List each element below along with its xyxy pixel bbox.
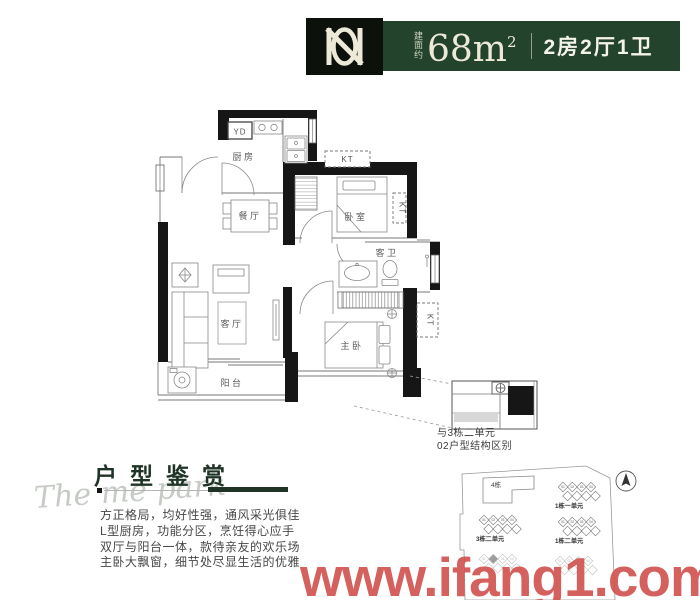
svg-text:03: 03 xyxy=(580,520,584,524)
svg-text:01: 01 xyxy=(561,520,565,524)
building-cluster: 010203043栋二单元 xyxy=(476,515,521,543)
svg-text:01: 01 xyxy=(561,485,565,489)
layout-summary: 2房2厅1卫 xyxy=(544,31,654,61)
watermark: www.ifang1.com xyxy=(300,545,700,600)
area-number: 68m xyxy=(427,29,507,70)
wardrobe xyxy=(295,177,317,210)
living-label: 客厅 xyxy=(220,318,243,329)
title-underline-thick xyxy=(208,487,288,492)
svg-text:04: 04 xyxy=(589,520,593,524)
balcony xyxy=(168,367,196,393)
svg-text:02: 02 xyxy=(571,485,575,489)
svg-text:02: 02 xyxy=(571,520,575,524)
building-4-label: 4栋 xyxy=(491,480,502,489)
svg-text:1栋一单元: 1栋一单元 xyxy=(555,502,584,510)
floorplan: YD 厨房 餐厅 卧室 KT KT KT xyxy=(140,95,560,465)
description-line: L型厨房，功能分区，烹饪得心应手 xyxy=(100,524,300,540)
area-value: 68m2 xyxy=(427,24,517,68)
page: 建面约 68m2 2房2厅1卫 xyxy=(0,0,700,600)
balcony-label: 阳台 xyxy=(220,377,243,388)
area-superscript: 2 xyxy=(507,33,517,51)
inset-caption-line1: 与3栋二单元 xyxy=(437,428,512,441)
svg-text:04: 04 xyxy=(510,518,514,522)
title-dot xyxy=(97,488,102,493)
building-cluster: 010203041栋一单元 xyxy=(555,482,600,510)
inset-caption-line2: 02户型结构区别 xyxy=(437,441,512,454)
building-4-outline xyxy=(483,476,534,503)
kitchen-label: 厨房 xyxy=(232,151,255,162)
svg-text:03: 03 xyxy=(501,518,505,522)
bay-window-strip xyxy=(338,292,403,308)
kt-tag-bedroom: KT xyxy=(398,202,407,214)
description-line: 主卧大飘窗，细节处尽显生活的优雅 xyxy=(100,555,300,571)
kt-tag-master: KT xyxy=(426,314,435,326)
yd-tag: YD xyxy=(233,128,246,137)
kt-tag-top: KT xyxy=(341,155,353,164)
bathroom-label: 客卫 xyxy=(375,247,398,258)
svg-text:3栋二单元: 3栋二单元 xyxy=(476,535,505,543)
inset-caption: 与3栋二单元 02户型结构区别 xyxy=(437,428,512,453)
svg-text:04: 04 xyxy=(589,485,593,489)
svg-text:1栋二单元: 1栋二单元 xyxy=(555,537,584,545)
header-divider xyxy=(531,33,532,59)
brand-monogram-icon xyxy=(306,18,383,75)
brand-logo xyxy=(306,18,383,75)
master-bedroom-label: 主卧 xyxy=(340,340,363,351)
svg-text:03: 03 xyxy=(580,485,584,489)
bathroom xyxy=(339,255,429,287)
svg-text:01: 01 xyxy=(482,518,486,522)
bedroom-label: 卧室 xyxy=(344,211,367,222)
living-room xyxy=(172,263,279,368)
structure-inset xyxy=(452,381,537,429)
title-underline-thin xyxy=(104,490,208,491)
section-title: 户型鉴赏 xyxy=(94,457,238,491)
description-line: 方正格局，均好性强，通风采光俱佳 xyxy=(100,508,300,524)
dining-label: 餐厅 xyxy=(238,210,261,221)
compass-icon xyxy=(616,471,636,491)
svg-text:02: 02 xyxy=(492,518,496,522)
area-prefix: 建面约 xyxy=(413,32,424,61)
bedroom xyxy=(337,177,387,232)
description-line: 双厅与阳台一体，款待亲友的欢乐场 xyxy=(100,540,300,556)
header-bar: 建面约 68m2 2房2厅1卫 xyxy=(383,21,680,71)
description: 方正格局，均好性强，通风采光俱佳 L型厨房，功能分区，烹饪得心应手 双厅与阳台一… xyxy=(100,508,300,571)
building-cluster: 010203041栋二单元 xyxy=(555,517,600,545)
